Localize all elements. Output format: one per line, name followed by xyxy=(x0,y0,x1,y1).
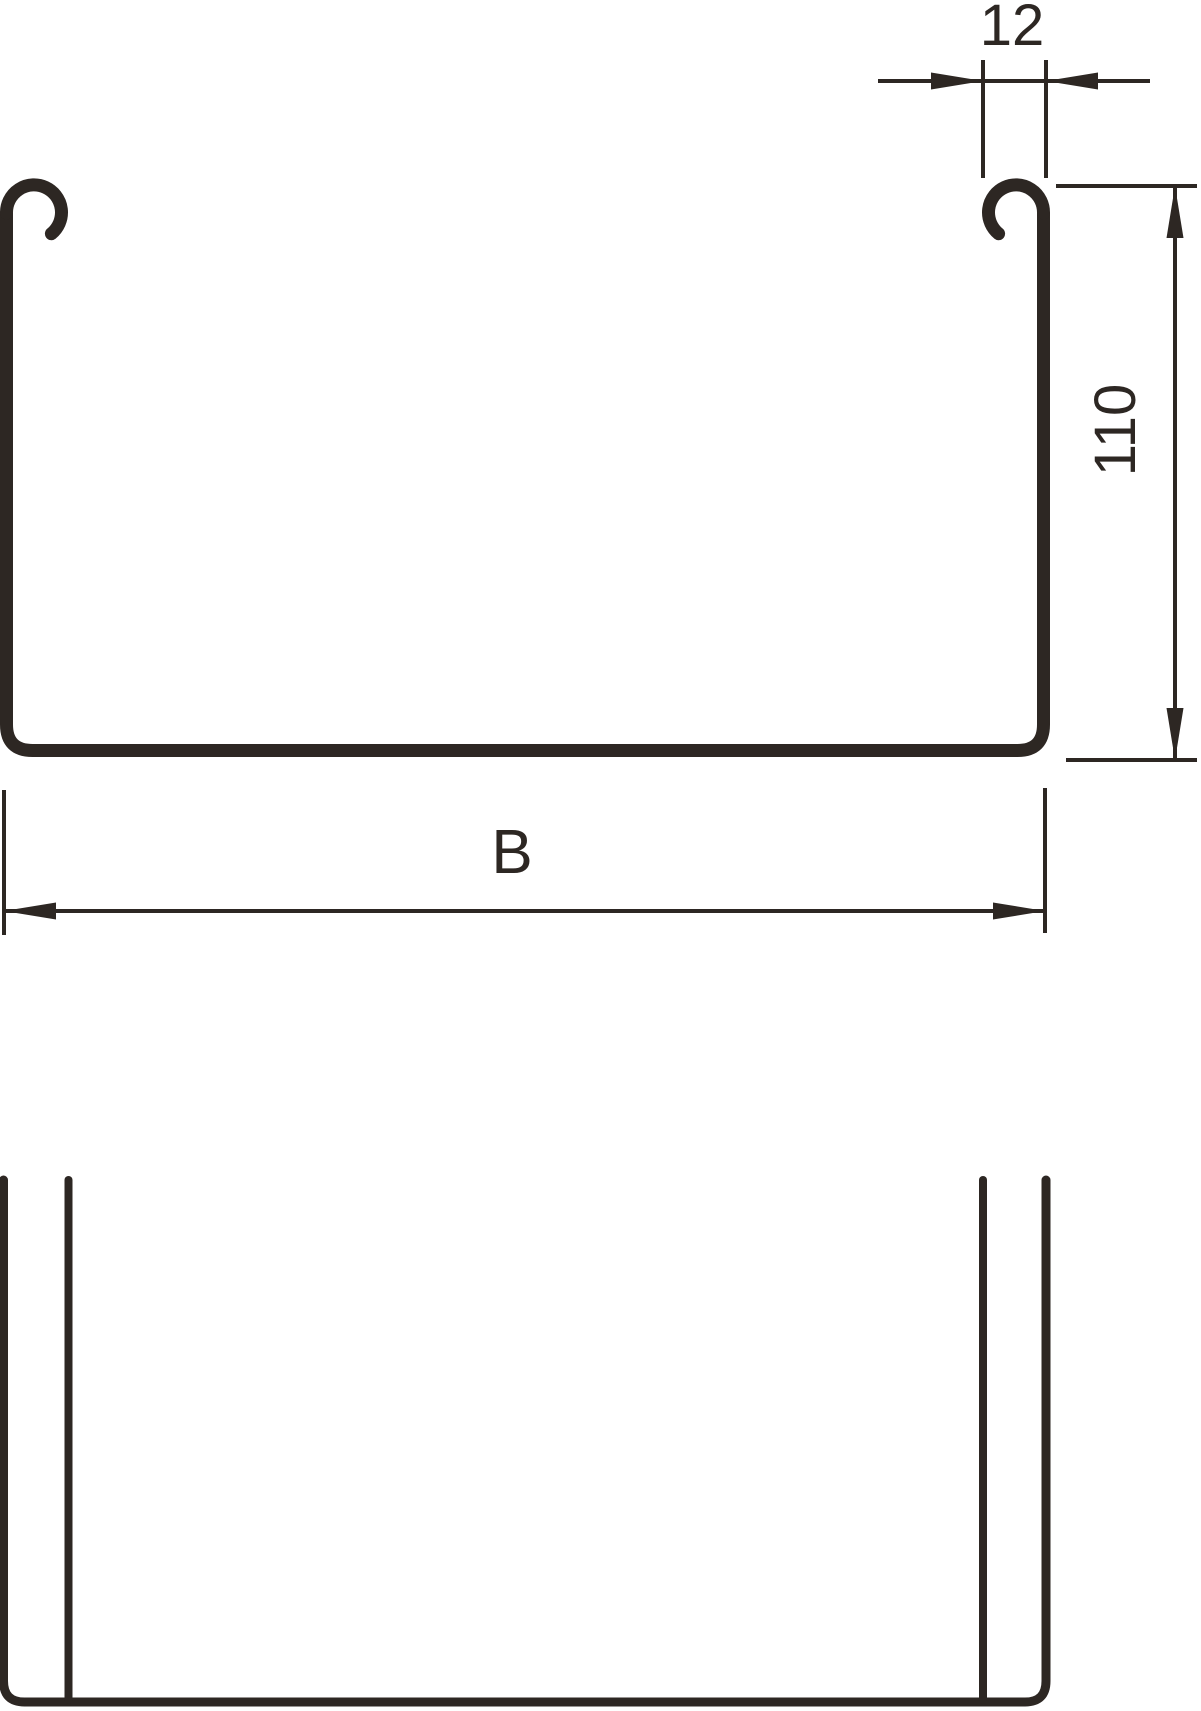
profile-outline xyxy=(7,212,1044,751)
arrowhead-right-icon xyxy=(993,903,1045,920)
arrowhead-left-icon xyxy=(1046,73,1098,90)
right-rolled-edge xyxy=(989,185,1044,234)
technical-drawing-canvas: 12 110 B xyxy=(0,0,1201,1711)
plan-view xyxy=(4,1180,1047,1702)
dimension-tray-width: B xyxy=(4,788,1045,935)
cable-tray-drawing: 12 110 B xyxy=(0,0,1201,1711)
left-rolled-edge xyxy=(6,185,61,234)
cross-section-view xyxy=(6,185,1043,751)
arrowhead-right-icon xyxy=(931,73,983,90)
dimension-flange-width: 12 xyxy=(878,0,1150,178)
side-height-label: 110 xyxy=(1083,384,1148,476)
tray-width-label: B xyxy=(491,818,532,887)
arrowhead-down-icon xyxy=(1167,708,1184,760)
flange-width-label: 12 xyxy=(980,0,1045,58)
arrowhead-up-icon xyxy=(1167,186,1184,238)
plan-outer-outline xyxy=(4,1180,1047,1702)
arrowhead-left-icon xyxy=(4,903,56,920)
dimension-side-height: 110 xyxy=(1056,186,1197,760)
